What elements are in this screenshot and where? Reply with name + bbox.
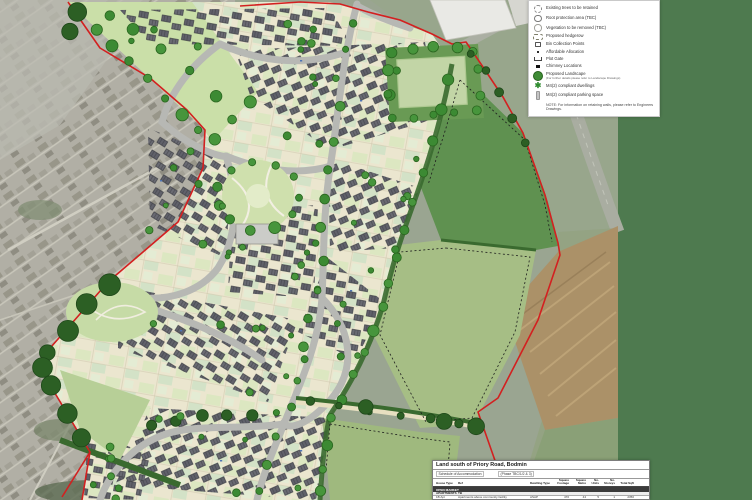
plot-gate-icon [533,57,543,61]
legend-item-label: Bin Collection Points [546,42,584,47]
col-total-sqft: Total Sqft [617,482,636,485]
legend-item-label: Chimney Locations [546,64,582,69]
legend-note-text: NOTE: For information on retaining walls… [546,103,655,111]
legend-item-label: Existing trees to be retained [546,6,598,11]
legend-item-label: Plot Gate [546,57,563,62]
affordable-allocation-icon [533,51,543,54]
accommodation-schedule: Land south of Priory Road, Bodmin Schedu… [432,460,650,500]
legend-item-label: M4(2) compliant dwellings [546,84,594,89]
legend-item: Vegetation to be removed (TBC) [533,24,655,32]
legend-item: Bin Collection Points [533,42,655,47]
vegetation-removed-icon [533,24,543,32]
schedule-row: 1B Apt Apartments above community facili… [433,496,649,500]
col-square-metre: Square Metre [571,479,588,486]
col-square-footage: Square Footage [554,479,571,486]
legend-item-label: Affordable Allocation [546,50,584,55]
map-legend: Existing trees to be retained Root prote… [528,0,660,117]
legend-item-label: Proposed hedgerow [546,34,583,39]
schedule-header-row: House Type Ref Dwelling Type Square Foot… [433,479,649,488]
legend-item-label: Root protection area (TBC) [546,16,596,21]
legend-item: Root protection area (TBC) [533,15,655,23]
legend-item: Chimney Locations [533,64,655,69]
legend-item: Existing trees to be retained [533,5,655,13]
m42-parking-icon [533,91,543,100]
legend-item: Plot Gate [533,57,655,62]
legend-item: Proposed Landscape(For further details p… [533,71,655,81]
m42-dwelling-icon: ✱ [533,83,543,89]
legend-note: NOTE: For information on retaining walls… [533,103,655,111]
chimney-icon [533,65,543,68]
schedule-subtitle-right: (Phase TBC/1/2 & 3) [498,471,534,477]
col-house-type: House Type [436,482,458,485]
schedule-subtitle-left: Schedule of Accommodation [436,471,484,477]
legend-item-label: M4(2) compliant parking space [546,93,603,98]
legend-item: Proposed hedgerow [533,34,655,40]
col-ref: Ref [458,482,530,485]
hedgerow-icon [533,34,543,40]
legend-item-label: Vegetation to be removed (TBC) [546,26,606,31]
col-dwelling-type: Dwelling Type [530,482,554,485]
proposed-landscape-icon [533,71,543,81]
root-protection-icon [533,15,543,23]
col-no-units: No. Units [588,479,601,486]
col-no-storeys: No. Storeys [601,479,617,486]
sports-pitch [397,56,467,107]
schedule-title: Land south of Priory Road, Bodmin [433,461,649,470]
legend-item: Affordable Allocation [533,49,655,54]
legend-item: ✱M4(2) compliant dwellings [533,83,655,89]
tree-retained-icon [533,5,543,13]
masterplan-page: Existing trees to be retained Root prote… [0,0,752,500]
bin-collection-icon [533,42,543,47]
schedule-subtitle: Schedule of Accommodation (Phase TBC/1/2… [433,470,649,478]
legend-item-label: Proposed Landscape(For further details p… [546,72,620,80]
legend-item: M4(2) compliant parking space [533,91,655,100]
